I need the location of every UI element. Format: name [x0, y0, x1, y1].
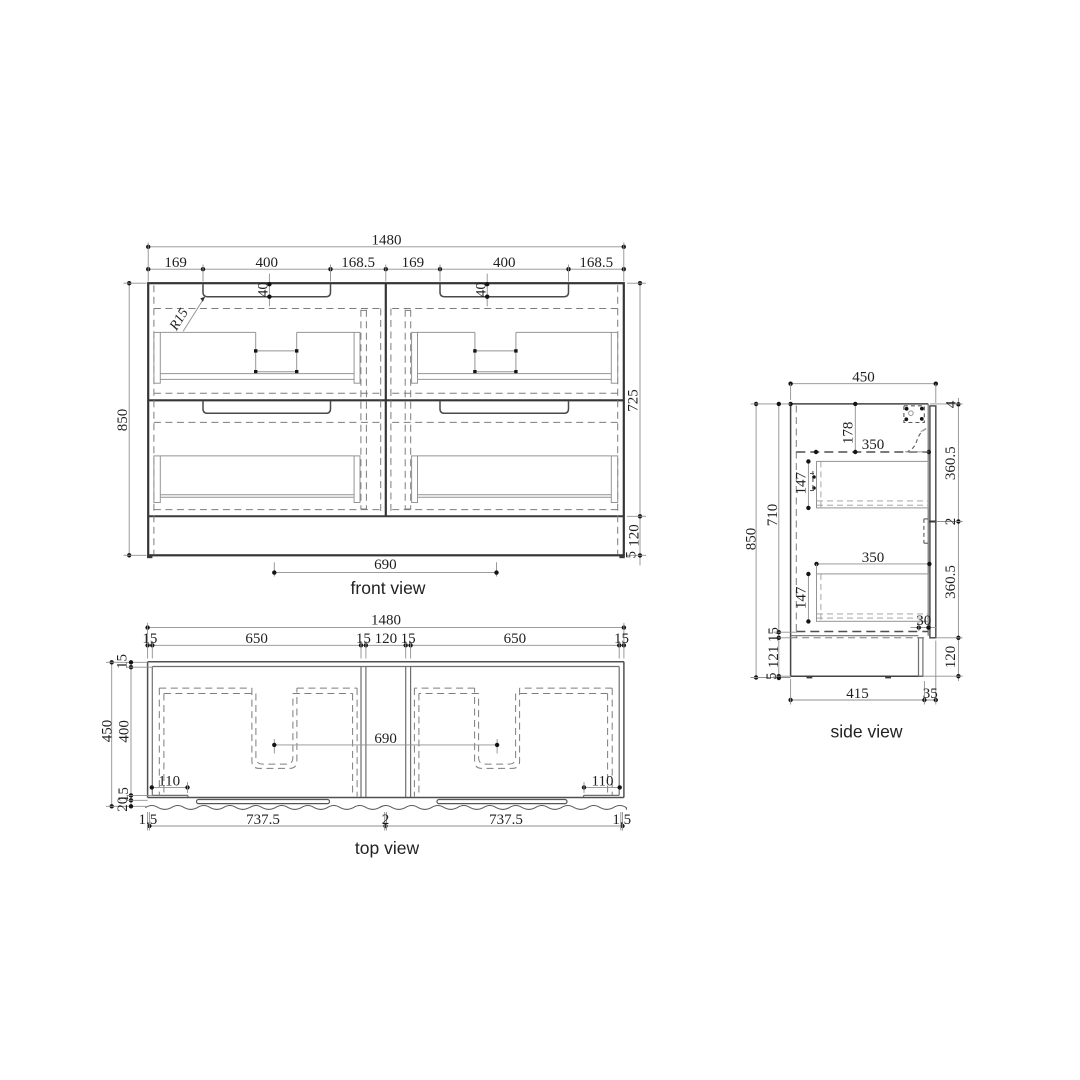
svg-text:20: 20 — [115, 797, 131, 812]
svg-text:5: 5 — [764, 672, 780, 680]
svg-text:169: 169 — [164, 255, 187, 271]
svg-text:690: 690 — [374, 731, 397, 747]
svg-text:350: 350 — [862, 550, 885, 566]
svg-text:15: 15 — [766, 627, 782, 642]
svg-text:360.5: 360.5 — [943, 565, 959, 599]
svg-text:147: 147 — [794, 586, 810, 609]
svg-text:15: 15 — [356, 631, 371, 647]
svg-text:110: 110 — [158, 773, 180, 789]
svg-text:650: 650 — [504, 631, 527, 647]
svg-text:30: 30 — [916, 613, 931, 629]
svg-text:40: 40 — [255, 282, 271, 297]
svg-text:400: 400 — [493, 255, 516, 271]
svg-text:168.5: 168.5 — [341, 255, 375, 271]
svg-text:737.5: 737.5 — [246, 812, 280, 828]
svg-text:120: 120 — [375, 631, 398, 647]
svg-text:850: 850 — [115, 409, 131, 432]
svg-text:15: 15 — [614, 631, 629, 647]
svg-text:737.5: 737.5 — [489, 812, 523, 828]
svg-text:side view: side view — [831, 722, 903, 742]
svg-text:1480: 1480 — [371, 612, 401, 628]
svg-text:120: 120 — [627, 524, 643, 547]
svg-text:650: 650 — [245, 631, 268, 647]
svg-text:1480: 1480 — [372, 233, 402, 249]
svg-text:top view: top view — [355, 838, 420, 858]
svg-text:1.5: 1.5 — [139, 812, 158, 828]
svg-text:169: 169 — [402, 255, 425, 271]
svg-text:710: 710 — [765, 504, 781, 527]
svg-text:2: 2 — [382, 812, 390, 828]
svg-text:4: 4 — [944, 400, 960, 408]
svg-text:120: 120 — [943, 646, 959, 669]
svg-text:415: 415 — [846, 686, 869, 702]
svg-text:400: 400 — [256, 255, 279, 271]
svg-text:15: 15 — [401, 631, 416, 647]
svg-text:40: 40 — [473, 282, 489, 297]
svg-text:front view: front view — [351, 578, 426, 598]
svg-text:35: 35 — [923, 686, 938, 702]
svg-text:1.5: 1.5 — [612, 812, 631, 828]
svg-text:350: 350 — [862, 437, 885, 453]
svg-text:690: 690 — [374, 557, 397, 573]
svg-text:178: 178 — [840, 422, 856, 445]
svg-text:168.5: 168.5 — [579, 255, 613, 271]
svg-text:450: 450 — [852, 369, 875, 385]
svg-text:400: 400 — [117, 720, 133, 743]
svg-text:2: 2 — [943, 518, 959, 526]
svg-text:5: 5 — [623, 551, 639, 559]
svg-text:360.5: 360.5 — [943, 446, 959, 480]
svg-text:450: 450 — [99, 720, 115, 743]
svg-text:850: 850 — [744, 528, 760, 551]
svg-text:121: 121 — [766, 646, 782, 669]
svg-text:147: 147 — [793, 471, 809, 494]
svg-text:R15: R15 — [167, 306, 192, 334]
svg-text:110: 110 — [592, 773, 614, 789]
svg-text:725: 725 — [625, 389, 641, 412]
svg-text:15: 15 — [142, 631, 157, 647]
svg-text:15: 15 — [115, 654, 131, 669]
